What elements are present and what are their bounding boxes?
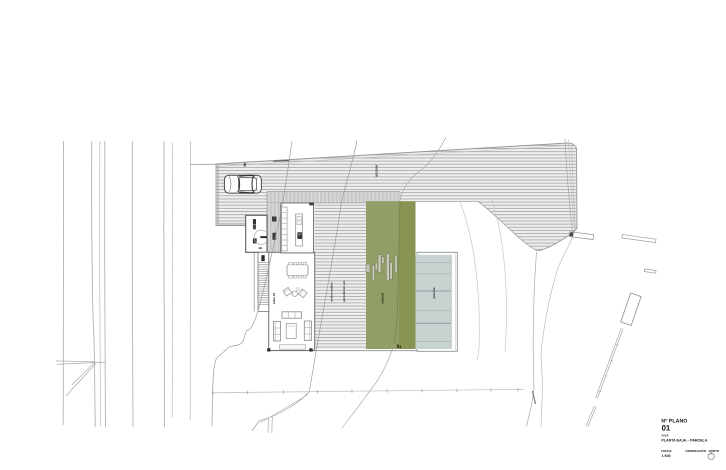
svg-text:césped: césped (381, 293, 385, 304)
svg-text:porcelánico ext.: porcelánico ext. (342, 280, 346, 302)
svg-text:FECHA: FECHA (661, 449, 672, 453)
svg-text:sube 18: sube 18 (272, 293, 276, 305)
svg-text:ORDENACIÓN: ORDENACIÓN (685, 449, 706, 453)
svg-text:piscina: piscina (432, 287, 436, 298)
svg-text:tarima madera: tarima madera (330, 282, 334, 302)
svg-text:NORTE: NORTE (709, 449, 720, 453)
svg-text:FASE: FASE (662, 434, 669, 437)
svg-text:1:500: 1:500 (662, 454, 671, 458)
svg-text:01: 01 (662, 423, 671, 432)
svg-text:acceso: acceso (375, 164, 379, 177)
svg-text:PLANTA BAJA – PARCELA: PLANTA BAJA – PARCELA (661, 439, 707, 443)
